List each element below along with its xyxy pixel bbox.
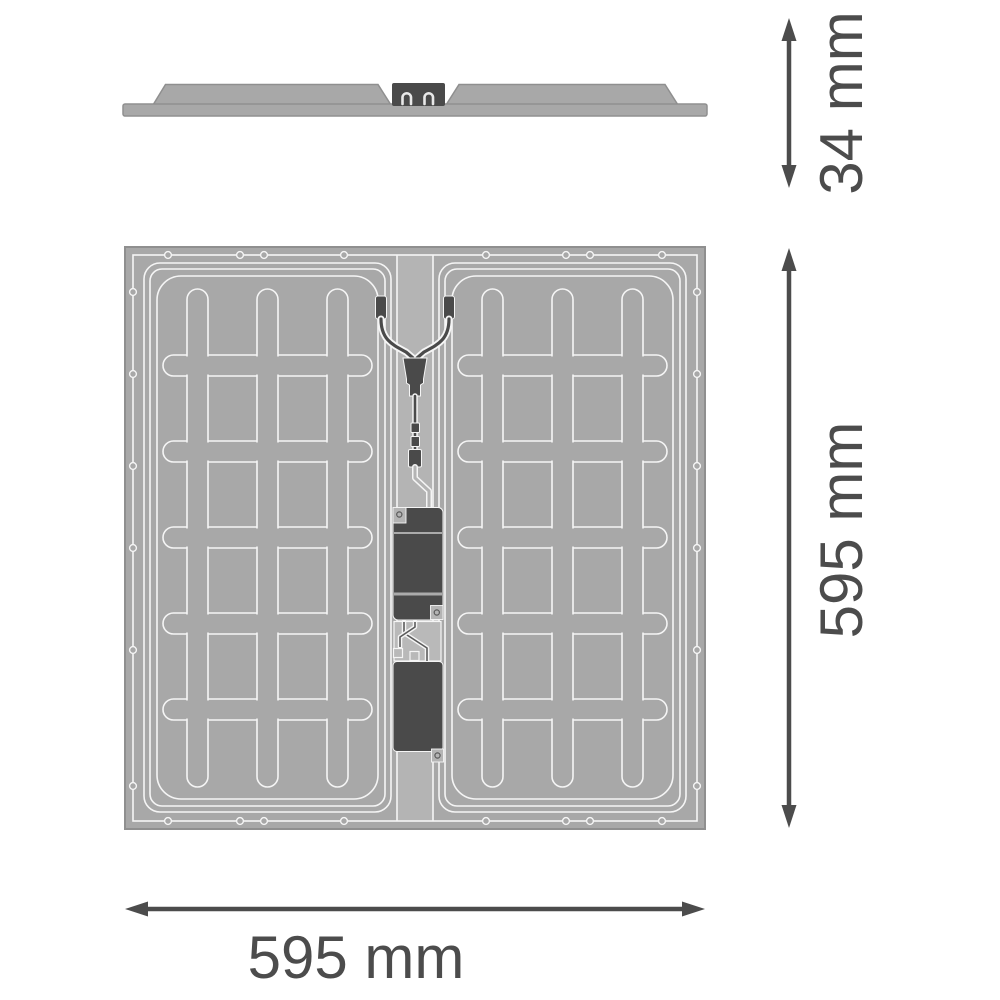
waffle-junction xyxy=(326,615,349,633)
screw-hole xyxy=(694,463,701,470)
drawing-canvas: 34 mm 595 mm 595 mm xyxy=(0,0,1000,1000)
screw-hole xyxy=(165,818,172,825)
waffle-junction xyxy=(621,357,644,375)
screw-hole xyxy=(694,289,701,296)
screw-hole xyxy=(341,252,348,259)
screw-hole xyxy=(130,647,137,654)
screw-hole xyxy=(261,818,268,825)
waffle-junction xyxy=(256,529,279,547)
waffle-junction xyxy=(481,357,504,375)
dimension-34mm: 34 mm xyxy=(782,11,876,194)
waffle-junction xyxy=(551,615,574,633)
waffle-junction xyxy=(481,701,504,719)
screw-hole xyxy=(694,371,701,378)
waffle-junction xyxy=(186,701,209,719)
waffle-junction xyxy=(186,357,209,375)
inline-connector-1 xyxy=(411,423,420,433)
dimension-595mm-height: 595 mm xyxy=(782,248,876,828)
dim-label-595mm-height: 595 mm xyxy=(808,422,875,639)
waffle-junction xyxy=(481,529,504,547)
screw-hole xyxy=(261,252,268,259)
waffle-junction xyxy=(326,443,349,461)
screw-hole xyxy=(694,783,701,790)
screw-hole xyxy=(130,463,137,470)
waffle-junction xyxy=(186,529,209,547)
waffle-junction xyxy=(326,701,349,719)
waffle-junction xyxy=(621,529,644,547)
mounting-tab-3 xyxy=(432,749,444,762)
screw-hole xyxy=(659,818,666,825)
screw-hole xyxy=(130,289,137,296)
waffle-junction xyxy=(621,443,644,461)
screw-hole xyxy=(237,818,244,825)
dimension-595mm-width: 595 mm xyxy=(125,902,705,992)
screw-hole xyxy=(563,252,570,259)
profile-left-body xyxy=(153,85,391,106)
waffle-junction xyxy=(186,615,209,633)
dim-label-34mm: 34 mm xyxy=(808,11,875,194)
inline-connector-2 xyxy=(411,437,420,447)
screw-hole xyxy=(130,783,137,790)
waffle-junction xyxy=(256,443,279,461)
waffle-junction xyxy=(551,701,574,719)
rear-view xyxy=(125,247,705,829)
screw-hole xyxy=(563,818,570,825)
waffle-junction xyxy=(481,615,504,633)
profile-right-body xyxy=(446,85,678,106)
screw-hole xyxy=(483,818,490,825)
side-profile-view xyxy=(123,83,707,116)
waffle-junction xyxy=(326,529,349,547)
waffle-junction xyxy=(256,357,279,375)
screw-hole xyxy=(130,371,137,378)
arrow-down-icon xyxy=(782,165,797,188)
screw-hole xyxy=(694,647,701,654)
screw-hole xyxy=(341,818,348,825)
driver-box-1 xyxy=(393,508,443,621)
arrow-down-icon xyxy=(782,805,797,828)
waffle-junction xyxy=(481,443,504,461)
led-panel-dimension-drawing: 34 mm 595 mm 595 mm xyxy=(0,0,1000,1000)
arrow-up-icon xyxy=(782,248,797,271)
driver-box-2 xyxy=(393,662,443,752)
screw-hole xyxy=(237,252,244,259)
screw-hole xyxy=(694,545,701,552)
mounting-tab-2 xyxy=(431,606,444,620)
screw-hole xyxy=(659,252,666,259)
screw-hole xyxy=(587,818,594,825)
screw-hole xyxy=(130,545,137,552)
dim-label-595mm-width: 595 mm xyxy=(248,924,465,991)
arrow-left-icon xyxy=(125,902,148,917)
screw-hole xyxy=(165,252,172,259)
waffle-junction xyxy=(186,443,209,461)
profile-connector-box xyxy=(392,83,445,106)
waffle-junction xyxy=(551,443,574,461)
screw-hole xyxy=(587,252,594,259)
waffle-junction xyxy=(621,615,644,633)
waffle-junction xyxy=(551,529,574,547)
screw-hole xyxy=(483,252,490,259)
arrow-up-icon xyxy=(782,18,797,41)
waffle-junction xyxy=(551,357,574,375)
waffle-junction xyxy=(256,701,279,719)
arrow-right-icon xyxy=(682,902,705,917)
waffle-junction xyxy=(256,615,279,633)
mounting-tab-1 xyxy=(393,508,406,524)
waffle-junction xyxy=(326,357,349,375)
terminal-block-1 xyxy=(394,649,403,658)
waffle-junction xyxy=(621,701,644,719)
terminal-block-2 xyxy=(410,652,419,661)
